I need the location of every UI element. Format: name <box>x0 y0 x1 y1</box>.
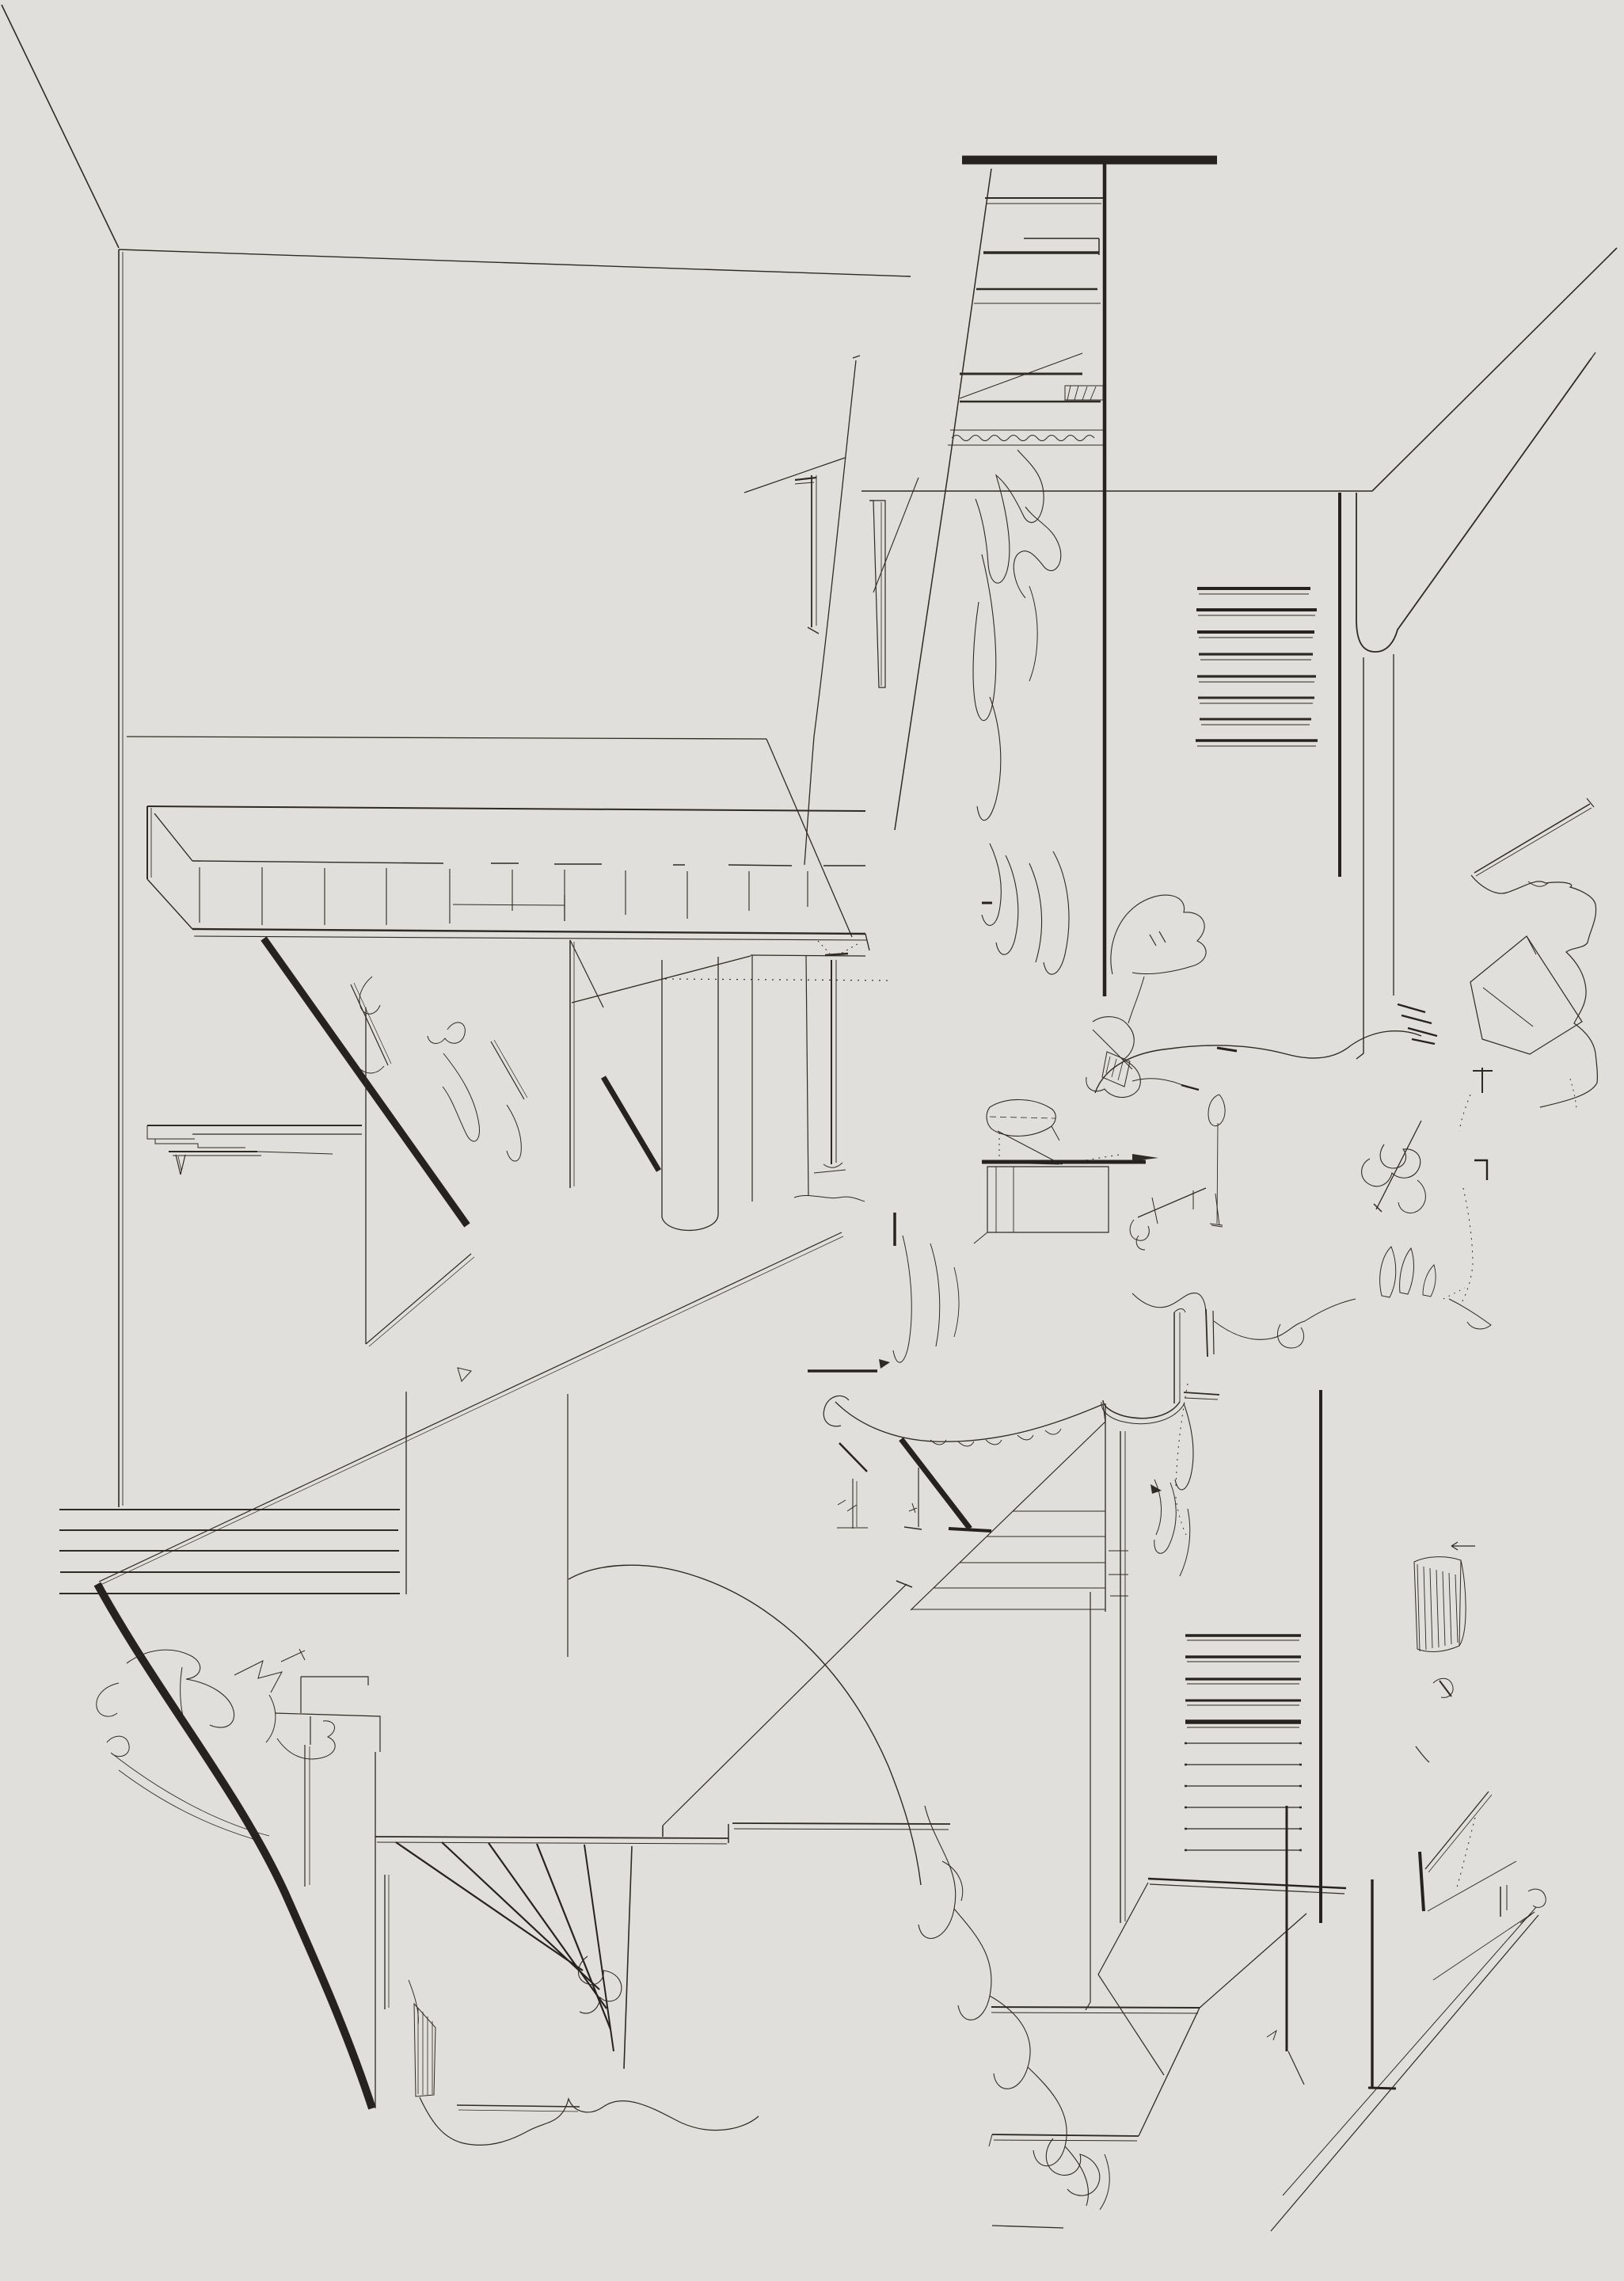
paper-background <box>0 0 1624 2281</box>
page <box>0 0 1624 2281</box>
paper-sheet <box>0 0 1624 2281</box>
drawing-svg <box>0 0 1624 2281</box>
